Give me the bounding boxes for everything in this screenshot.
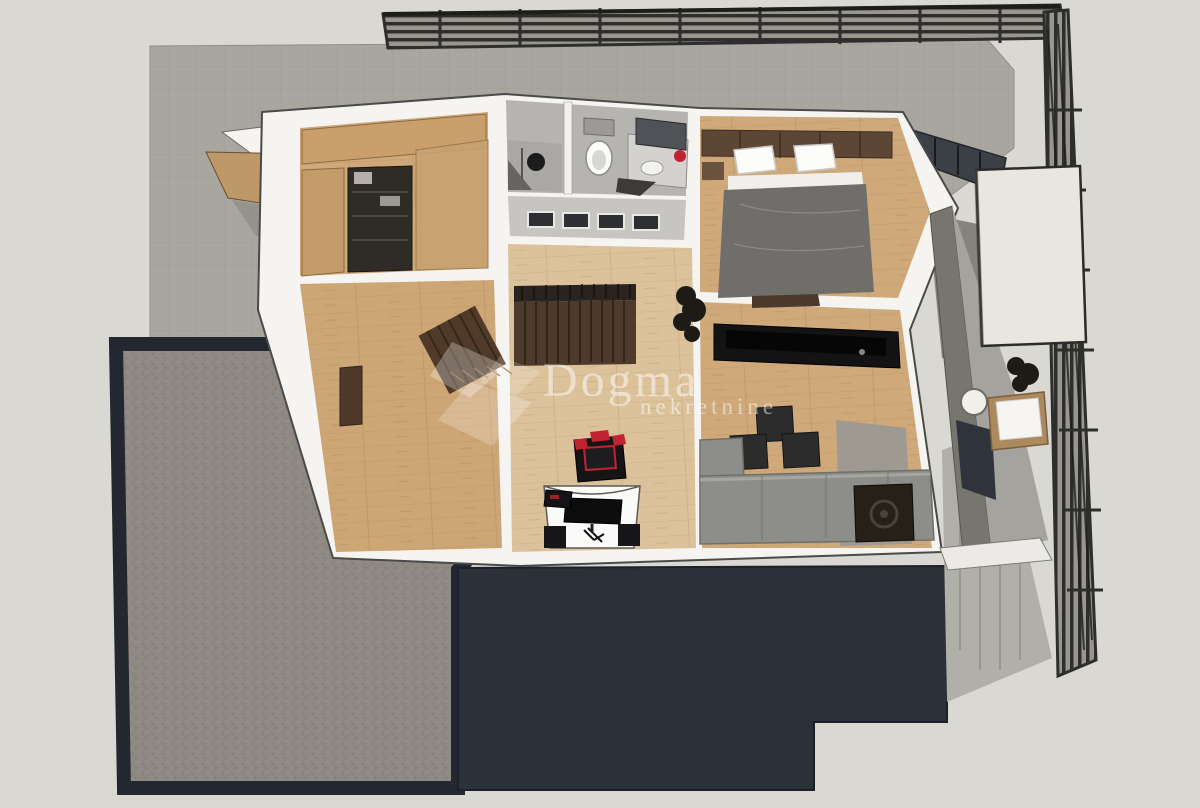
pillow <box>734 146 776 174</box>
tv-console <box>714 324 900 368</box>
bedroom <box>702 130 892 308</box>
bed-bench <box>752 294 820 308</box>
house <box>258 94 958 566</box>
speaker <box>618 524 640 546</box>
cabinet <box>340 366 362 426</box>
nightstand <box>702 162 724 180</box>
side-table-speaker <box>854 484 914 542</box>
vanity <box>628 118 688 188</box>
white-slab <box>976 166 1086 346</box>
floorplan-render-canvas: Dogma nekretnine <box>0 0 1200 808</box>
open-shelf-unit <box>348 166 412 272</box>
balcony-table <box>961 389 987 415</box>
speaker <box>544 526 566 548</box>
wardrobe-right <box>416 140 488 270</box>
pouf <box>782 432 820 468</box>
balcony-chair <box>988 392 1048 450</box>
wardrobe-left <box>302 168 344 276</box>
washbasin <box>641 161 663 175</box>
shower-partition <box>564 102 572 194</box>
monitor <box>564 498 622 524</box>
watermark-tagline: nekretnine <box>640 394 777 419</box>
red-towel <box>674 150 686 162</box>
walk-in-closet <box>302 114 488 276</box>
floorplan-render: Dogma nekretnine <box>0 0 1200 808</box>
shower-head <box>527 153 545 171</box>
vanity-mirror <box>636 118 686 150</box>
pillow <box>794 144 836 172</box>
